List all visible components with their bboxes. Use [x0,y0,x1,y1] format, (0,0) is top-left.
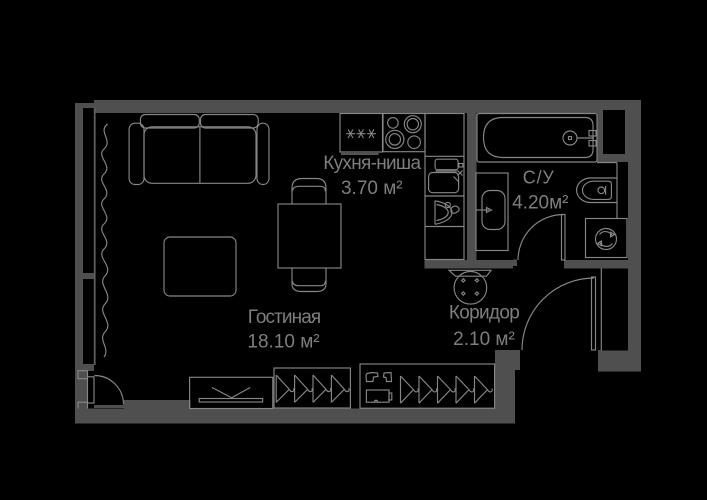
svg-text:Кухня-ниша: Кухня-ниша [323,153,421,174]
svg-text:С/У: С/У [523,168,555,188]
svg-text:2.10 м²: 2.10 м² [453,329,515,350]
svg-text:3.70 м²: 3.70 м² [341,178,403,199]
svg-text:Гостиная: Гостиная [248,307,321,328]
svg-text:Коридор: Коридор [449,303,519,324]
svg-text:18.10 м²: 18.10 м² [247,332,319,353]
svg-text:4.20м²: 4.20м² [512,192,568,213]
